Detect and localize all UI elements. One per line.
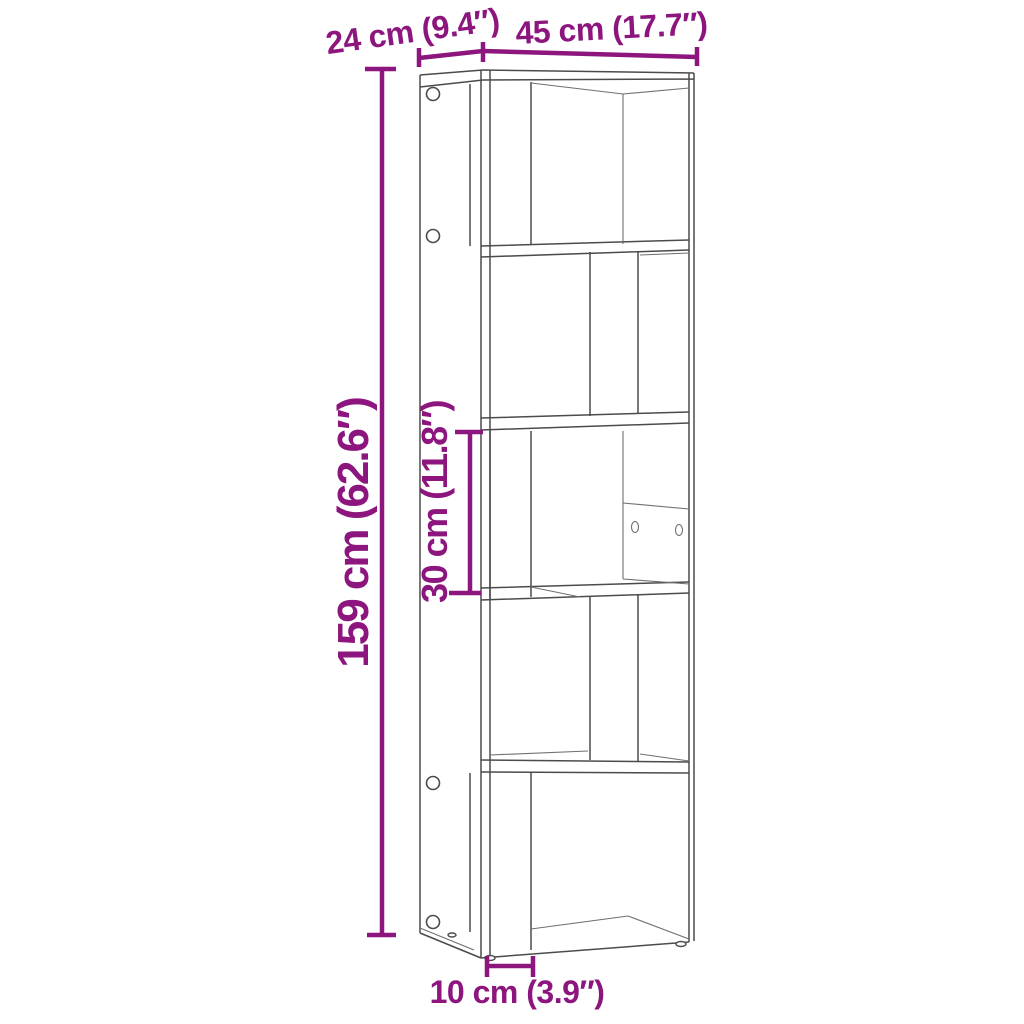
bookshelf-line-drawing [420, 70, 694, 961]
inner-height-label: 30 cm (11.8″) [414, 401, 455, 603]
height-label: 159 cm (62.6″) [329, 398, 378, 668]
foot-back-left [448, 933, 456, 937]
bookcase-dimension-drawing: 24 cm (9.4″) 45 cm (17.7″) 159 cm (62.6″… [0, 0, 1024, 1024]
dimension-diagram: 24 cm (9.4″) 45 cm (17.7″) 159 cm (62.6″… [0, 0, 1024, 1024]
interior-lines [420, 83, 689, 950]
cam-hole-top-lower [427, 230, 440, 243]
cam-hole-top-upper [427, 88, 440, 101]
foot-front-right [676, 942, 686, 947]
tier-dividers [490, 82, 638, 950]
back-panel-hole-left [632, 522, 639, 533]
cam-hole-bottom-lower [427, 916, 440, 929]
back-panel-hole-right [676, 525, 683, 536]
bookshelf-outline [420, 70, 694, 958]
width-label: 45 cm (17.7″) [515, 5, 709, 51]
cam-hole-bottom-upper [427, 777, 440, 790]
foot-inset-label: 10 cm (3.9″) [430, 974, 605, 1010]
